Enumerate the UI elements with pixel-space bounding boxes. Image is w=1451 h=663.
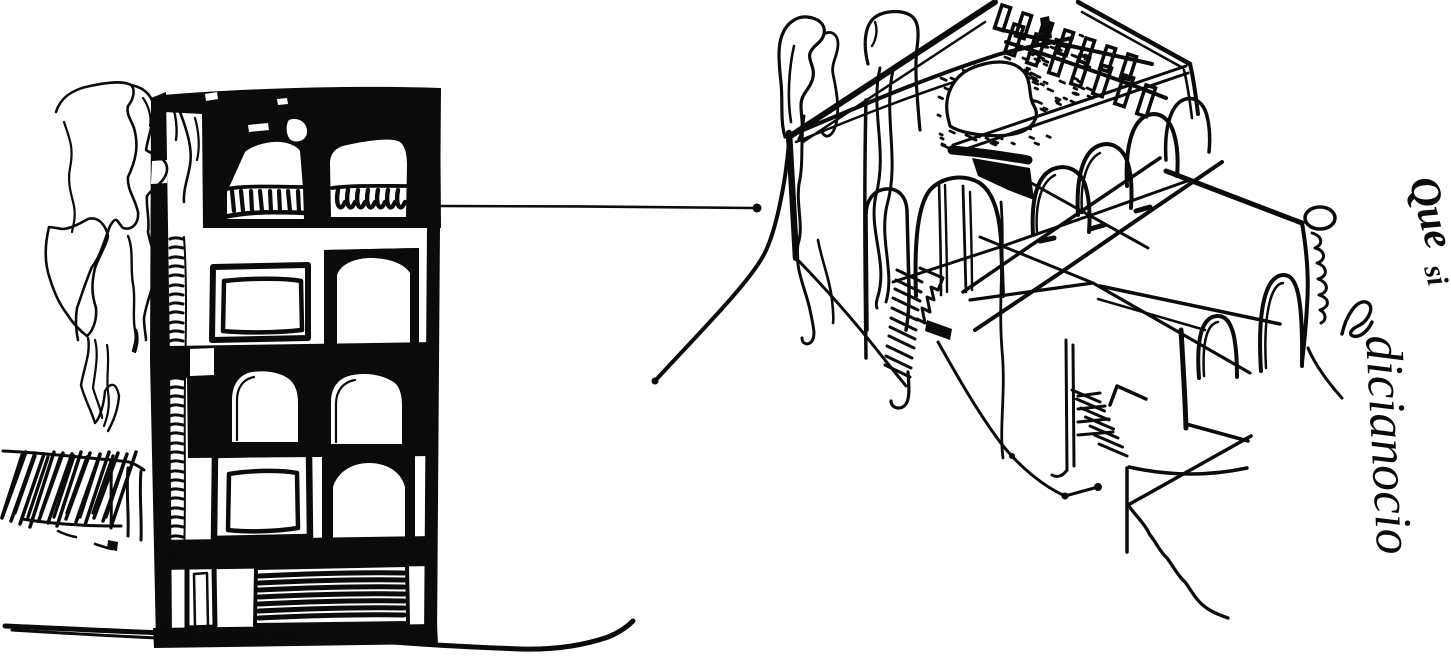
- svg-text:dicianocio: dicianocio: [1354, 334, 1422, 556]
